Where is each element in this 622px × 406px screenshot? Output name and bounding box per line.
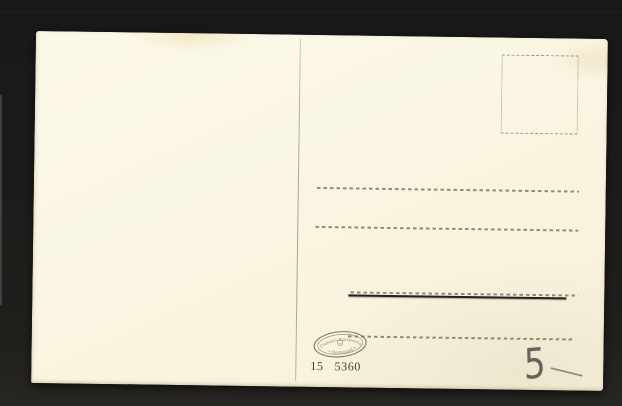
print-code-number: 5360 [334, 359, 361, 373]
address-line-1 [317, 187, 579, 193]
handwritten-price: 5 [523, 342, 546, 386]
center-divider-line [295, 39, 301, 381]
publisher-stamp-city-text: • Dortmund • [327, 346, 358, 357]
print-code-series: 15 [310, 359, 323, 373]
publisher-stamp: Cramers Kunstanstalt • Dortmund • [311, 328, 368, 361]
stamp-box [501, 55, 579, 135]
print-code: 155360 [310, 359, 361, 375]
handwritten-price-dash: — [547, 355, 588, 387]
address-line-2 [315, 226, 578, 232]
photo-edge-artifact [0, 95, 2, 305]
postcard-back: Cramers Kunstanstalt • Dortmund • 155360… [31, 31, 608, 391]
